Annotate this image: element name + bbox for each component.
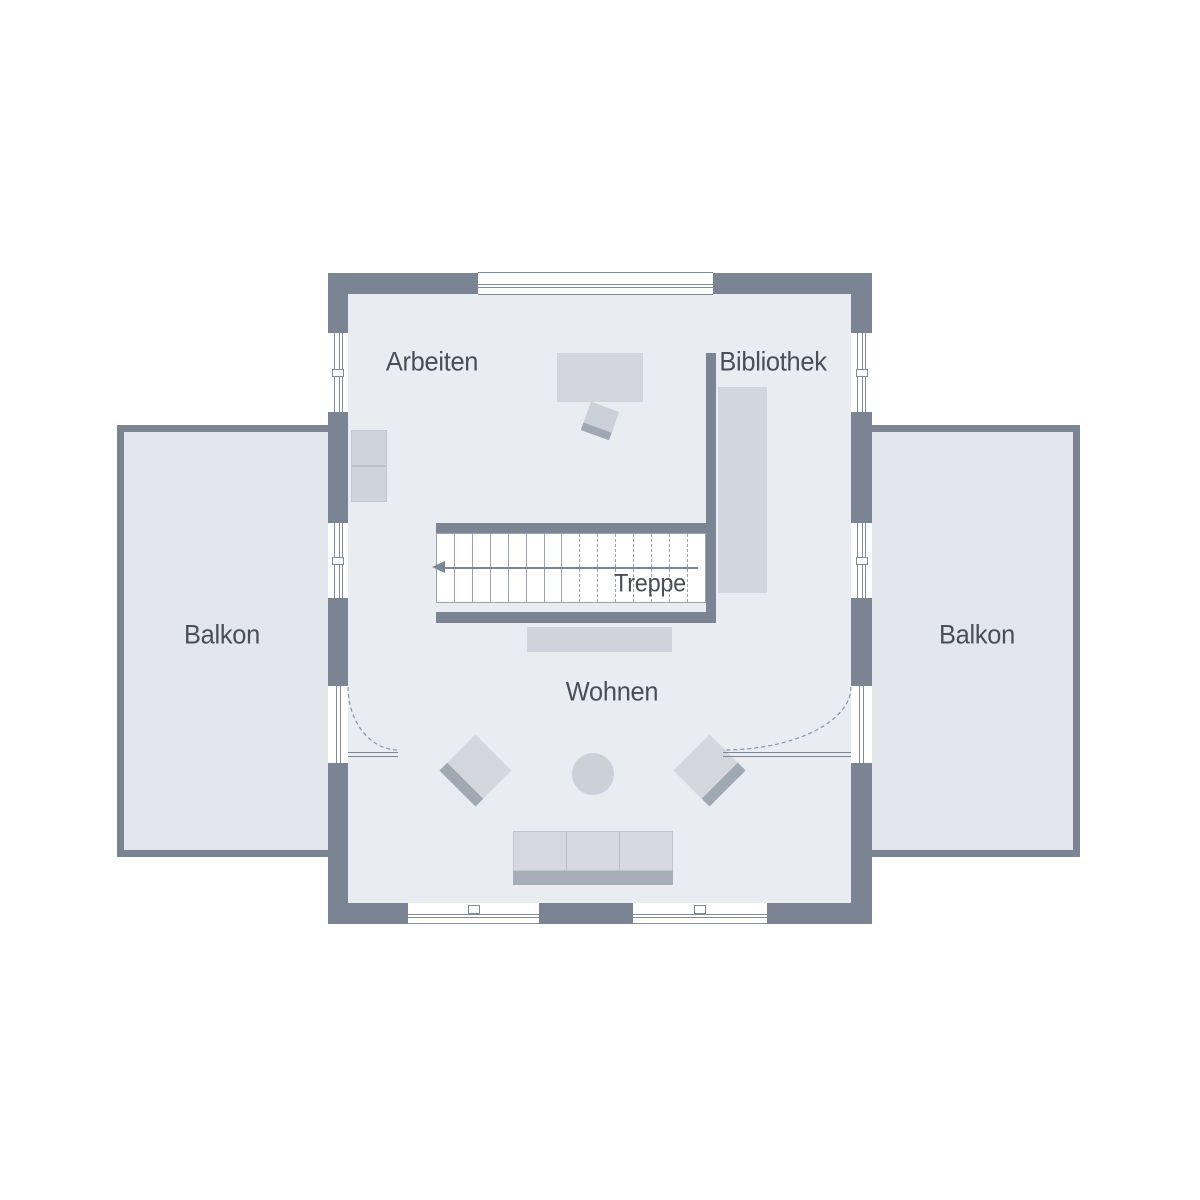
window-glass-line — [633, 914, 767, 915]
door-frame-line — [336, 686, 337, 763]
wall-segment — [539, 903, 633, 924]
window-frame-mark — [332, 557, 344, 565]
window-glass-line — [478, 284, 713, 285]
wall-segment — [328, 273, 348, 333]
sofa-base — [513, 871, 673, 885]
wall-segment — [851, 273, 872, 333]
wall-segment — [851, 763, 872, 924]
bookshelf — [718, 387, 767, 593]
wall-segment — [851, 412, 872, 523]
cabinet-divider — [352, 465, 386, 467]
window-symbol — [633, 904, 767, 924]
room-label-treppe: Treppe — [614, 570, 686, 599]
stair-walkline — [443, 567, 698, 569]
window-symbol — [408, 904, 539, 924]
window-frame-mark — [694, 905, 706, 914]
door-frame-line — [340, 686, 341, 763]
door-opening — [851, 686, 872, 763]
wall-segment — [328, 273, 478, 294]
sideboard — [527, 627, 672, 652]
cabinet — [351, 430, 387, 502]
room-label-arbeiten: Arbeiten — [386, 347, 478, 378]
sofa — [513, 831, 673, 871]
window-frame-mark — [332, 369, 344, 377]
window-frame-mark — [856, 369, 868, 377]
coffee-table — [572, 753, 614, 795]
room-label-wohnen: Wohnen — [566, 677, 658, 708]
door-leaf — [348, 752, 398, 757]
window-symbol — [328, 333, 348, 412]
wall-segment — [851, 598, 872, 686]
window-glass-line — [408, 917, 539, 918]
stair-wall-top — [436, 523, 706, 533]
window-symbol — [478, 272, 713, 295]
sofa-cushion — [620, 832, 672, 870]
interior-wall — [706, 353, 716, 623]
stair-wall-bottom — [436, 612, 716, 623]
sofa-cushion — [514, 832, 567, 870]
window-symbol — [851, 333, 872, 412]
door-opening — [328, 686, 348, 763]
wall-segment — [328, 412, 348, 523]
room-label-balkon-right: Balkon — [939, 620, 1015, 651]
sofa-cushion — [567, 832, 620, 870]
floor-plan: Arbeiten Bibliothek Treppe Wohnen Balkon… — [0, 0, 1200, 1200]
desk — [557, 353, 643, 402]
window-frame-mark — [856, 557, 868, 565]
window-glass-line — [478, 287, 713, 288]
room-label-bibliothek: Bibliothek — [719, 347, 826, 378]
door-frame-line — [859, 686, 860, 763]
window-frame-mark — [468, 905, 480, 914]
door-frame-line — [863, 686, 864, 763]
wall-segment — [328, 598, 348, 686]
window-symbol — [851, 523, 872, 598]
window-glass-line — [633, 917, 767, 918]
door-leaf — [723, 752, 851, 757]
window-glass-line — [408, 914, 539, 915]
room-label-balkon-left: Balkon — [184, 620, 260, 651]
window-symbol — [328, 523, 348, 598]
stair-direction-arrow-icon — [432, 561, 445, 573]
wall-segment — [328, 763, 348, 924]
wall-segment — [713, 273, 872, 294]
